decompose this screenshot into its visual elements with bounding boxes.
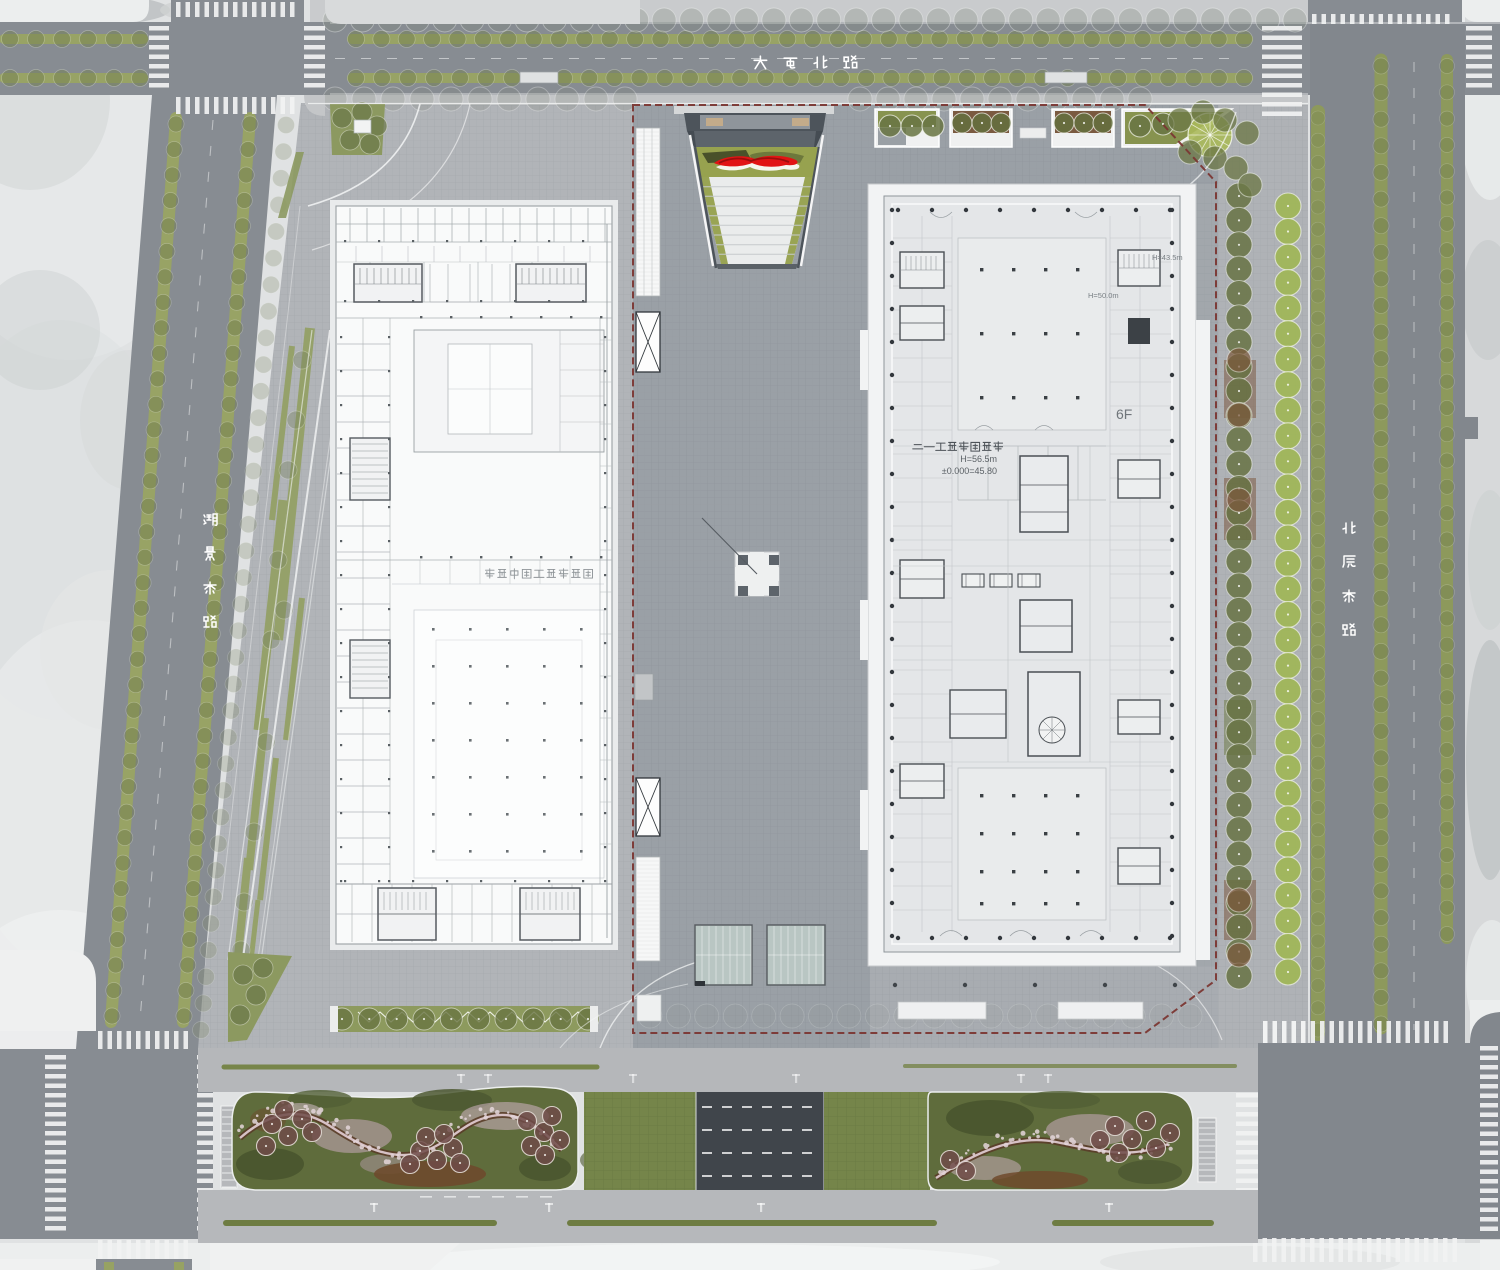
svg-text:H=43.5m: H=43.5m: [1152, 253, 1183, 262]
svg-text:H=56.5m: H=56.5m: [960, 454, 997, 464]
svg-text:±0.000=45.80: ±0.000=45.80: [942, 466, 997, 476]
svg-text:H=50.0m: H=50.0m: [1088, 291, 1119, 300]
